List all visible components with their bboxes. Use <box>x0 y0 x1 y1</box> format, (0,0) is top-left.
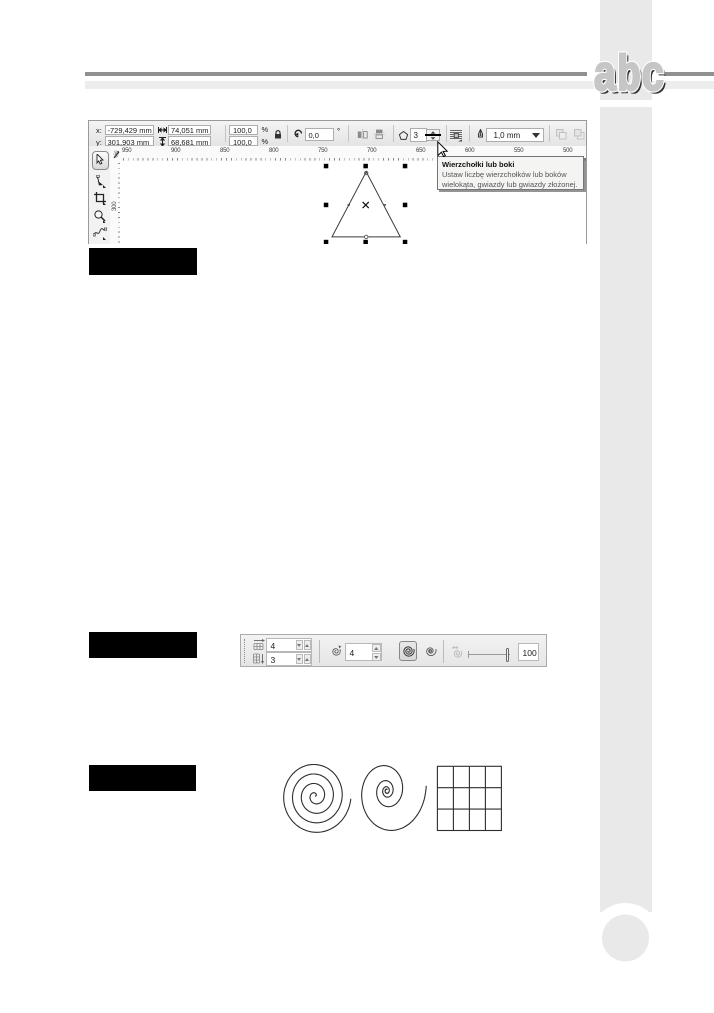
svg-text:abc: abc <box>593 49 665 100</box>
